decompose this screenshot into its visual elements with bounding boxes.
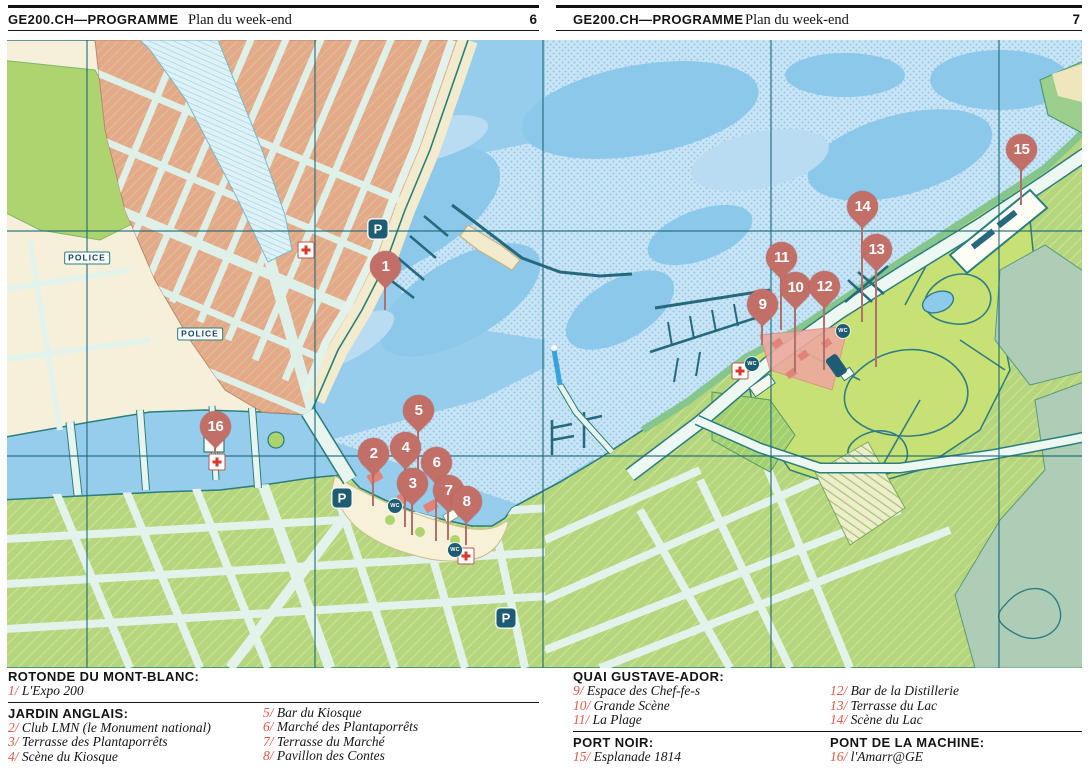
- legend-item-number: 8/: [263, 748, 277, 763]
- legend-section-title: PONT DE LA MACHINE:: [830, 735, 1082, 750]
- ile-rousseau: [268, 432, 284, 448]
- page-number-right: 7: [1072, 12, 1080, 27]
- map-pin-number: 11: [766, 242, 797, 273]
- legend-item-16: 16/ l'Amarr@GE: [830, 750, 1082, 765]
- page-header-left: GE200.CH—PROGRAMME Plan du week-end 6: [8, 0, 539, 36]
- page-header-right: GE200.CH—PROGRAMME Plan du week-end 7: [556, 0, 1082, 36]
- header-rule-top: [556, 5, 1082, 8]
- map-pin-number: 12: [809, 271, 840, 302]
- header-rule-bottom: [8, 30, 539, 31]
- legend-right-page: QUAI GUSTAVE-ADOR:9/ Espace des Chef-fe-…: [573, 669, 1082, 764]
- legend-item-4: 4/ Scène du Kiosque: [8, 750, 263, 765]
- map-pin-9[interactable]: 9: [740, 283, 784, 327]
- map-pin-number: 14: [847, 191, 878, 222]
- legend-item-label: l'Amarr@GE: [851, 749, 923, 764]
- map-pin-number: 15: [1006, 134, 1037, 165]
- legend-column-1: ROTONDE DU MONT-BLANC:1/ L'Expo 200: [8, 669, 263, 699]
- legend-item-number: 4/: [8, 749, 22, 764]
- legend-item-2: 2/ Club LMN (le Monument national): [8, 721, 263, 736]
- legend-item-label: Terrasse des Plantaporrêts: [22, 734, 168, 749]
- map-pin-number: 6: [421, 447, 452, 478]
- legend-item-number: 7/: [263, 734, 277, 749]
- page-title-left: Plan du week-end: [188, 12, 292, 29]
- legend-column-2: 12/ Bar de la Distillerie13/ Terrasse du…: [830, 669, 1082, 728]
- legend-item-label: Scène du Lac: [851, 712, 923, 727]
- legend-section-title: ROTONDE DU MONT-BLANC:: [8, 669, 263, 684]
- map-canvas: [0, 40, 1089, 668]
- legend-section-title: PORT NOIR:: [573, 735, 830, 750]
- magazine-spread: { "pages": [ {"brand":"GE200.CH—PROGRAMM…: [0, 0, 1089, 775]
- legend-item-label: Terrasse du Lac: [851, 698, 938, 713]
- map-pin-14[interactable]: 14: [840, 185, 884, 229]
- legend-column-1: QUAI GUSTAVE-ADOR:9/ Espace des Chef-fe-…: [573, 669, 830, 728]
- legend-item-9: 9/ Espace des Chef-fe-s: [573, 684, 830, 699]
- legend-item-label: Scène du Kiosque: [22, 749, 118, 764]
- legend-item-10: 10/ Grande Scène: [573, 699, 830, 714]
- legend-item-number: 16/: [830, 749, 851, 764]
- map-pin-8[interactable]: 8: [444, 480, 488, 524]
- legend-column-2: [263, 669, 539, 699]
- legend-item-label: Espace des Chef-fe-s: [587, 683, 700, 698]
- legend-item-number: 11/: [573, 712, 593, 727]
- legend-item-1: 1/ L'Expo 200: [8, 684, 263, 699]
- legend-item-number: 10/: [573, 698, 594, 713]
- legend-subsection: PONT DE LA MACHINE:16/ l'Amarr@GE: [830, 735, 1082, 765]
- map-pin-1[interactable]: 1: [363, 245, 407, 289]
- legend-column-2: 5/ Bar du Kiosque6/ Marché des Plantapor…: [263, 706, 539, 765]
- legend-item-7: 7/ Terrasse du Marché: [263, 735, 539, 750]
- map-pin-number: 13: [861, 234, 892, 265]
- legend-item-3: 3/ Terrasse des Plantaporrêts: [8, 735, 263, 750]
- legend-item-13: 13/ Terrasse du Lac: [830, 699, 1082, 714]
- legend-item-number: 1/: [8, 683, 22, 698]
- legend-item-8: 8/ Pavillon des Contes: [263, 749, 539, 764]
- brand-left: GE200.CH—PROGRAMME: [8, 12, 178, 27]
- legend-item-15: 15/ Esplanade 1814: [573, 750, 830, 765]
- legend-item-12: 12/ Bar de la Distillerie: [830, 684, 1082, 699]
- legend-item-label: Bar de la Distillerie: [851, 683, 959, 698]
- map-pin-11[interactable]: 11: [759, 236, 803, 280]
- legend-item-number: 14/: [830, 712, 851, 727]
- legend-section-title: QUAI GUSTAVE-ADOR:: [573, 669, 830, 684]
- map-pin-13[interactable]: 13: [854, 228, 898, 272]
- legend-item-label: La Plage: [593, 712, 642, 727]
- legend-item-number: 6/: [263, 719, 277, 734]
- legend-divider: [8, 702, 539, 703]
- legend-section-title: JARDIN ANGLAIS:: [8, 706, 263, 721]
- map-pin-15[interactable]: 15: [999, 128, 1043, 172]
- legend-subsection: PORT NOIR:15/ Esplanade 1814: [573, 735, 830, 765]
- legend-item-label: Marché des Plantaporrêts: [277, 719, 418, 734]
- map-pin-16[interactable]: 16: [193, 405, 237, 449]
- legend-item-number: 3/: [8, 734, 22, 749]
- legend-item-11: 11/ La Plage: [573, 713, 830, 728]
- legend-item-label: Terrasse du Marché: [277, 734, 385, 749]
- legend-item-5: 5/ Bar du Kiosque: [263, 706, 539, 721]
- legend-column-1: JARDIN ANGLAIS:2/ Club LMN (le Monument …: [8, 706, 263, 765]
- legend-item-label: Grande Scène: [594, 698, 670, 713]
- legend-item-number: 12/: [830, 683, 851, 698]
- map-pin-number: 1: [370, 251, 401, 282]
- map-pin-number: 16: [200, 411, 231, 442]
- page-number-left: 6: [529, 12, 537, 27]
- legend-item-number: 15/: [573, 749, 594, 764]
- header-rule-bottom: [556, 30, 1082, 31]
- legend-item-number: 9/: [573, 683, 587, 698]
- map-pin-12[interactable]: 12: [802, 265, 846, 309]
- map-pin-number: 4: [390, 432, 421, 463]
- page-title-right: Plan du week-end: [745, 12, 849, 29]
- map-pin-number: 8: [451, 486, 482, 517]
- legend-item-number: 13/: [830, 698, 851, 713]
- brand-right: GE200.CH—PROGRAMME: [573, 12, 743, 27]
- legend-item-label: Esplanade 1814: [594, 749, 681, 764]
- legend-item-14: 14/ Scène du Lac: [830, 713, 1082, 728]
- legend-left-page: ROTONDE DU MONT-BLANC:1/ L'Expo 200JARDI…: [8, 669, 539, 764]
- legend-item-label: L'Expo 200: [22, 683, 84, 698]
- legend-item-label: Pavillon des Contes: [277, 748, 385, 763]
- legend-item-label: Bar du Kiosque: [277, 705, 362, 720]
- map-pin-number: 5: [403, 395, 434, 426]
- header-rule-top: [8, 5, 539, 8]
- legend-item-number: 5/: [263, 705, 277, 720]
- legend-item-number: 2/: [8, 720, 22, 735]
- map-pin-number: 9: [747, 289, 778, 320]
- map-pin-5[interactable]: 5: [396, 389, 440, 433]
- legend-item-label: Club LMN (le Monument national): [22, 720, 211, 735]
- legend-item-6: 6/ Marché des Plantaporrêts: [263, 720, 539, 735]
- map-pin-2[interactable]: 2: [351, 432, 395, 476]
- map-pin-number: 2: [358, 438, 389, 469]
- legend-divider: [573, 731, 1082, 732]
